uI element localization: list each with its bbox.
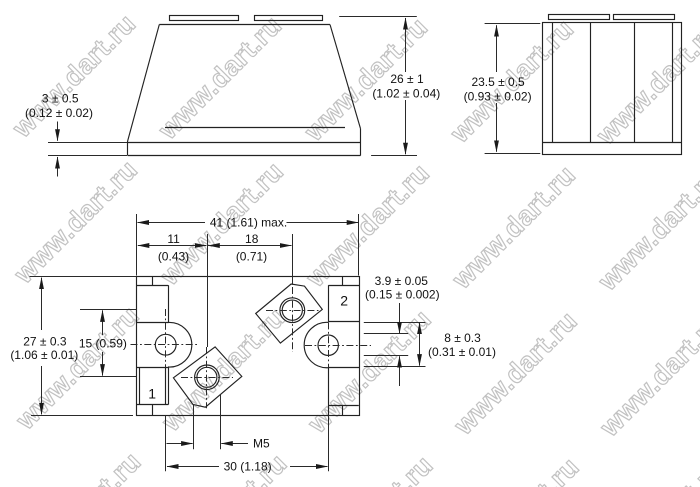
svg-text:(1.02 ± 0.04): (1.02 ± 0.04): [372, 87, 440, 101]
svg-text:26 ± 1: 26 ± 1: [390, 72, 424, 86]
svg-text:8 ± 0.3: 8 ± 0.3: [444, 331, 481, 345]
svg-text:11: 11: [167, 232, 180, 246]
svg-text:(0.15 ± 0.002): (0.15 ± 0.002): [365, 287, 440, 301]
svg-text:(0.93 ± 0.02): (0.93 ± 0.02): [464, 90, 532, 104]
svg-text:18: 18: [245, 232, 259, 246]
svg-text:(0.71): (0.71): [236, 250, 267, 264]
svg-text:23.5 ± 0.5: 23.5 ± 0.5: [471, 75, 525, 89]
svg-text:2: 2: [340, 293, 348, 309]
svg-text:M5: M5: [253, 437, 270, 451]
svg-text:3 ± 0.5: 3 ± 0.5: [42, 92, 79, 106]
svg-text:3.9 ± 0.05: 3.9 ± 0.05: [375, 274, 429, 288]
svg-text:(0.12 ± 0.02): (0.12 ± 0.02): [25, 106, 93, 120]
svg-text:(1.06 ± 0.01): (1.06 ± 0.01): [10, 348, 78, 362]
svg-text:30 (1.18): 30 (1.18): [224, 460, 272, 474]
svg-text:(0.31 ± 0.01): (0.31 ± 0.01): [428, 345, 496, 359]
svg-text:1: 1: [148, 385, 156, 401]
svg-text:27 ± 0.3: 27 ± 0.3: [23, 334, 67, 348]
svg-text:41 (1.61) max.: 41 (1.61) max.: [210, 216, 287, 230]
svg-text:(0.43): (0.43): [158, 250, 189, 264]
svg-text:15 (0.59): 15 (0.59): [79, 336, 127, 350]
